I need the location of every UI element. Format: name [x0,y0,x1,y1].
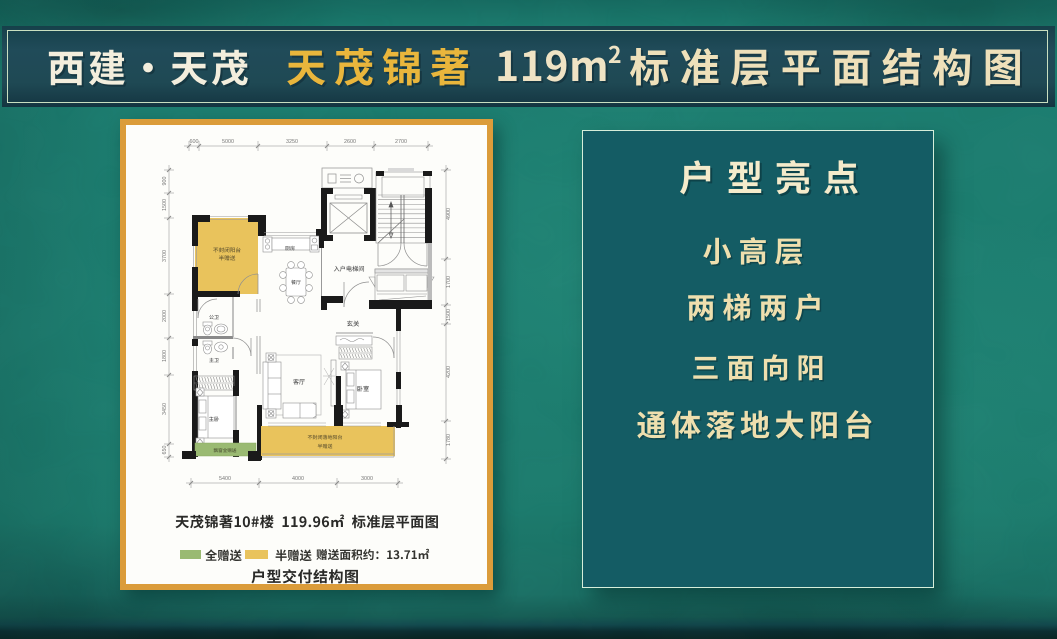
svg-text:3700: 3700 [162,250,168,262]
svg-text:3000: 3000 [361,476,373,482]
svg-text:1800: 1800 [162,350,168,362]
svg-text:2600: 2600 [344,139,356,145]
svg-text:4200: 4200 [446,366,452,378]
svg-text:1700: 1700 [446,276,452,288]
svg-text:3450: 3450 [162,403,168,415]
svg-text:1780: 1780 [446,434,452,446]
svg-text:650: 650 [162,446,168,455]
svg-text:2000: 2000 [162,310,168,322]
svg-text:1500: 1500 [446,309,452,321]
svg-text:5400: 5400 [219,476,231,482]
svg-text:600: 600 [190,139,199,145]
svg-text:5000: 5000 [222,139,234,145]
svg-text:2700: 2700 [395,139,407,145]
svg-text:4900: 4900 [446,208,452,220]
svg-text:3250: 3250 [286,139,298,145]
svg-text:1500: 1500 [162,199,168,211]
svg-text:900: 900 [162,177,168,186]
svg-text:4000: 4000 [292,476,304,482]
